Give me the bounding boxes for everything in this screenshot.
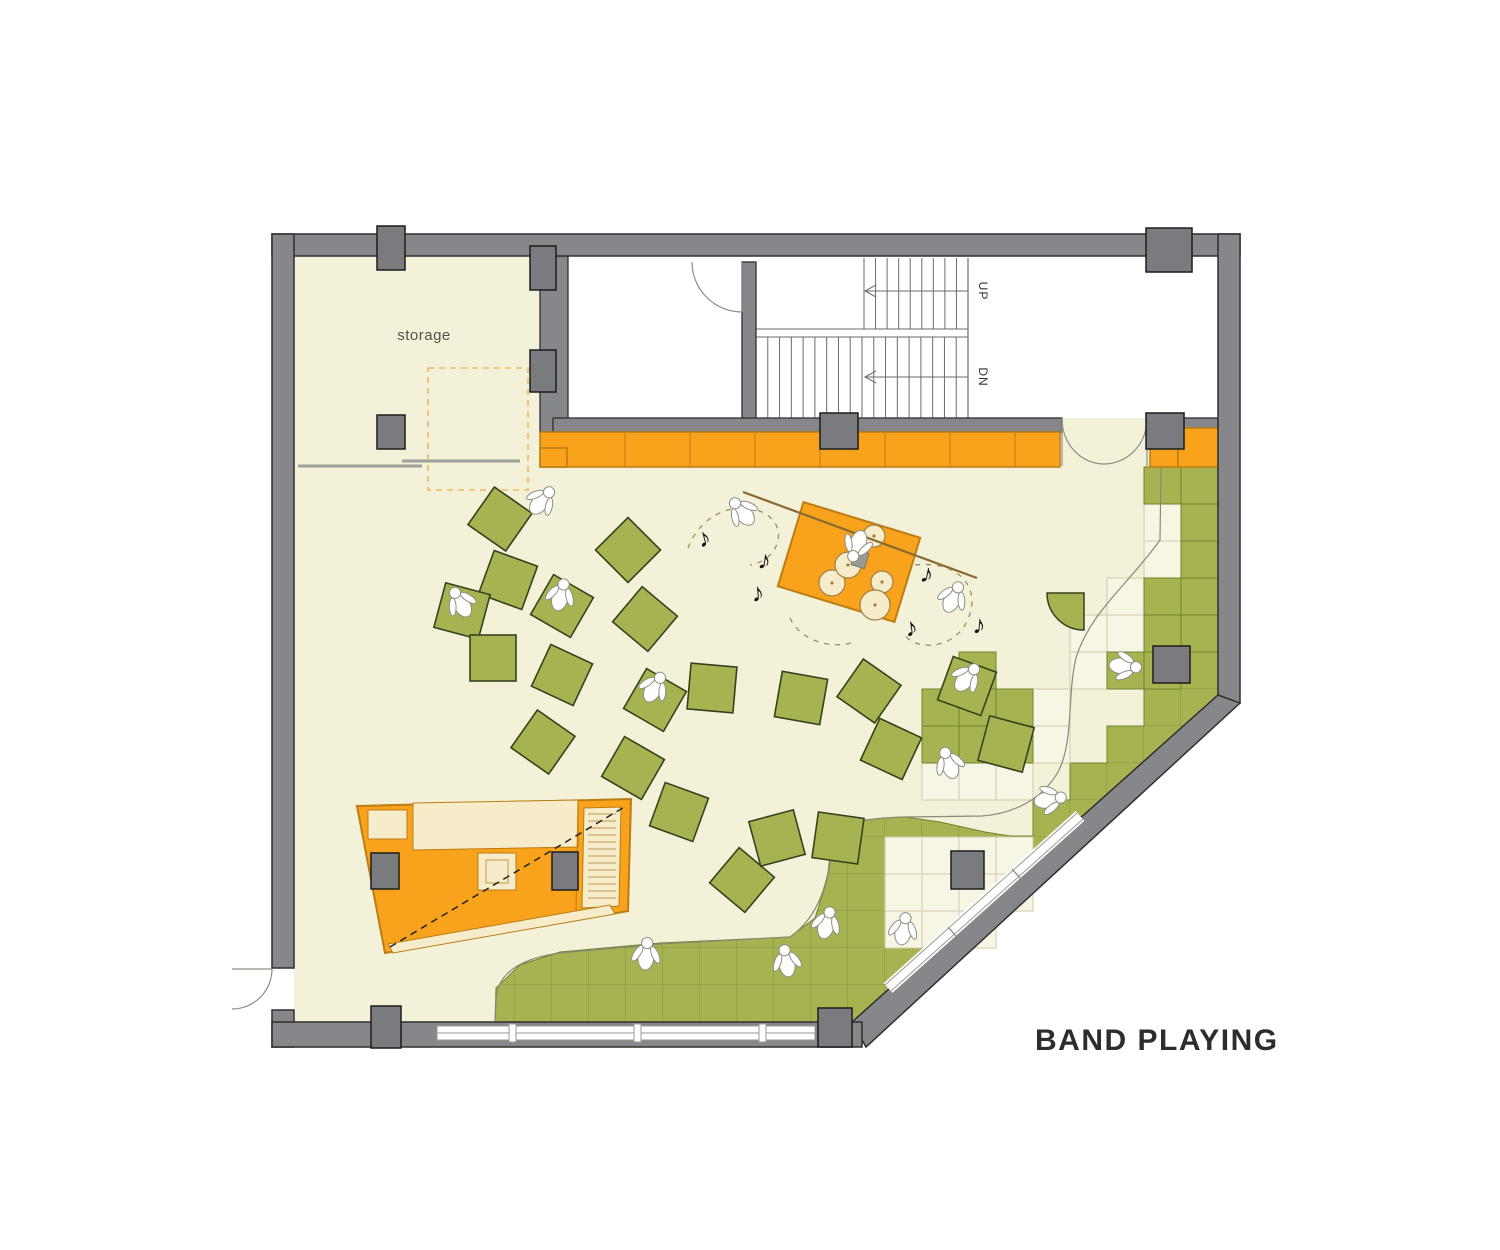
cream-tile	[959, 763, 996, 800]
drum-center	[873, 603, 876, 606]
column	[1146, 413, 1184, 449]
column	[951, 851, 984, 889]
wall-top	[272, 234, 1240, 256]
green-tile	[1144, 467, 1181, 504]
music-note-icon: ♪	[750, 577, 766, 608]
cushion	[812, 812, 864, 864]
cream-tile	[1144, 504, 1181, 541]
green-tile	[1181, 467, 1218, 504]
green-tile	[1144, 578, 1181, 615]
wall-right	[1218, 234, 1240, 703]
stair-dn-label: DN	[976, 367, 990, 386]
cream-tile	[1144, 541, 1181, 578]
green-tile	[1181, 541, 1218, 578]
cream-tile	[1033, 726, 1070, 763]
plan-title: BAND PLAYING	[1035, 1024, 1279, 1057]
column	[371, 853, 399, 889]
column	[377, 226, 405, 270]
cream-tile	[1107, 615, 1144, 652]
cream-tile	[885, 874, 922, 911]
column	[1153, 646, 1190, 683]
column	[1146, 228, 1192, 272]
column	[530, 246, 556, 290]
green-tile	[1181, 504, 1218, 541]
bar-sink	[478, 853, 516, 890]
green-tile	[1181, 578, 1218, 615]
column	[820, 413, 858, 449]
drum-center	[830, 581, 833, 584]
column	[377, 415, 405, 449]
drum-center	[846, 563, 849, 566]
column	[552, 852, 578, 890]
bar-top-unit	[368, 810, 407, 839]
drum-center	[872, 534, 875, 537]
storage-label: storage	[397, 327, 451, 344]
orange-band-piece	[540, 448, 567, 467]
orange-band-piece	[1150, 448, 1178, 467]
floor-plan-svg: UP DN storage	[0, 0, 1500, 1250]
exit-door	[232, 969, 272, 1009]
music-note-icon: ♪	[971, 609, 987, 640]
column	[371, 1006, 401, 1048]
cream-tile	[1033, 689, 1070, 726]
stair-up-label: UP	[976, 282, 990, 301]
drum-center	[880, 580, 883, 583]
cream-tile	[885, 837, 922, 874]
cushion	[470, 635, 516, 681]
orange-band-main	[540, 432, 1060, 467]
wall-left	[272, 234, 294, 968]
cushion	[687, 663, 737, 713]
column	[530, 350, 556, 392]
floor-plan-canvas: UP DN storage	[0, 0, 1500, 1250]
bar-shelf	[582, 807, 621, 908]
cushion	[774, 671, 827, 724]
column	[818, 1008, 852, 1047]
storefront-glazing-bottom	[437, 1024, 815, 1042]
